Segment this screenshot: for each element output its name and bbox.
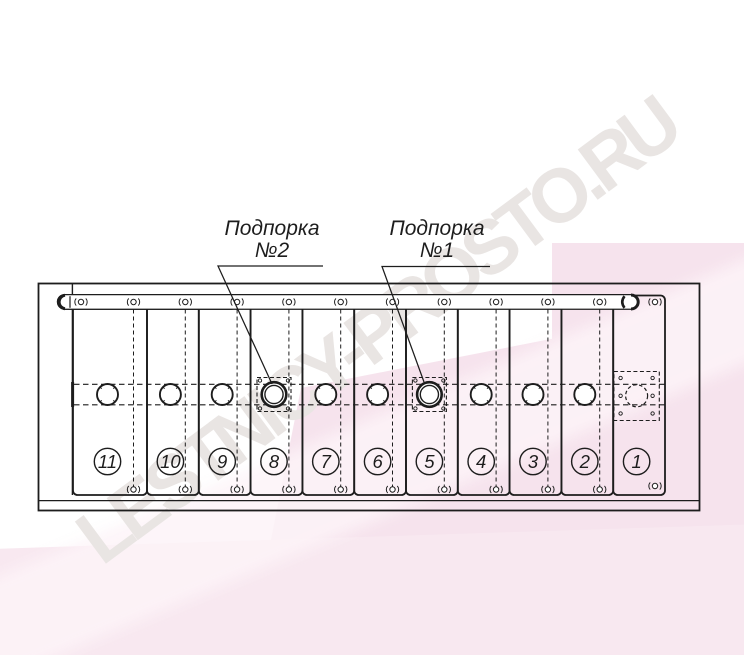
mount-plate-screw-mark [619,376,622,379]
plank-5-bottom-fastener [438,486,450,493]
support-square-corner-mark [414,379,417,382]
plank-1-top-fastener [649,298,661,305]
plank-4-bottom-fastener [490,486,502,493]
drawing-page: LESTNICY-PROSTO.RU [0,0,744,655]
callout-support1-line2: №1 [352,240,522,262]
holes-and-fasteners-layer: 1110987654321 [75,298,661,493]
number-label-plank-7: 7 [321,451,332,472]
plank-9-bottom-fastener [231,486,243,493]
mount-plate-dashed-rect [614,372,659,421]
support-square-corner-mark [258,379,261,382]
callout-support2-line2: №2 [187,240,357,262]
number-label-plank-3: 3 [528,451,539,472]
number-label-plank-6: 6 [372,451,383,472]
plank-11-bottom-fastener [127,486,139,493]
number-label-plank-10: 10 [160,451,181,472]
number-label-plank-8: 8 [269,451,280,472]
number-label-plank-11: 11 [98,451,117,472]
mount-plate-screw-mark [651,394,654,397]
number-label-plank-2: 2 [579,451,591,472]
plank-7-bottom-fastener [335,486,347,493]
number-label-plank-9: 9 [217,451,227,472]
assembly-drawing: 1110987654321 [0,0,744,655]
mount-plate-screw-mark [651,412,654,415]
plank-8-bottom-fastener [283,486,295,493]
plank-3-bottom-fastener [542,486,554,493]
mount-plate-dashed-circle [626,385,648,407]
mount-plate-screw-mark [619,412,622,415]
plank-6-bottom-fastener [386,486,398,493]
support-square-corner-mark [414,407,417,410]
plank-2-bottom-fastener [594,486,606,493]
plank-10-bottom-fastener [179,486,191,493]
callout-support1: Подпорка №1 [352,218,522,262]
mount-plate-screw-mark [651,376,654,379]
callout-support2-line1: Подпорка [224,217,319,240]
rail-body [58,295,639,310]
number-label-plank-4: 4 [476,451,486,472]
callout-support1-line1: Подпорка [389,217,484,240]
number-label-plank-5: 5 [424,451,435,472]
support-square-corner-mark [258,407,261,410]
callout-support2: Подпорка №2 [187,218,357,262]
plank-1-bottom-fastener [649,482,661,489]
mount-plate-screw-mark [619,394,622,397]
top-rail-bar [58,295,639,310]
number-label-plank-1: 1 [631,451,641,472]
